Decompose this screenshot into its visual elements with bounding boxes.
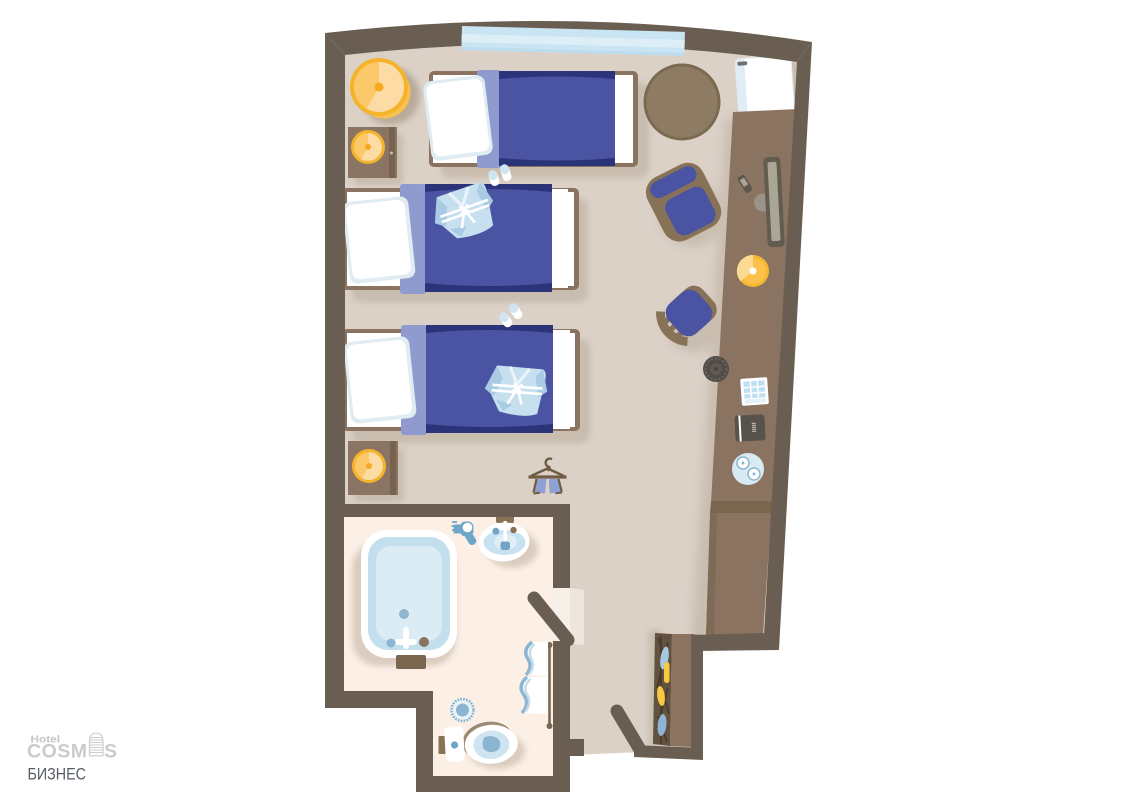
svg-text:БИЗНЕС: БИЗНЕС [28, 766, 87, 784]
svg-text:COSM: COSM [27, 741, 87, 763]
svg-text:S: S [104, 741, 117, 763]
